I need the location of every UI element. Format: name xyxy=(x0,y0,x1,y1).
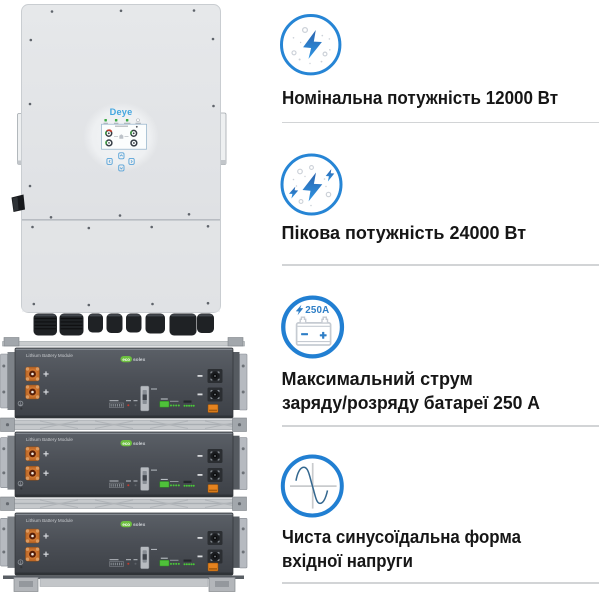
svg-text:solex: solex xyxy=(133,357,146,363)
svg-text:Lithium Battery Module: Lithium Battery Module xyxy=(26,437,73,442)
svg-text:250A: 250A xyxy=(305,305,329,316)
svg-text:solex: solex xyxy=(133,522,146,528)
svg-text:Lithium Battery Module: Lithium Battery Module xyxy=(26,353,73,358)
svg-text:eco: eco xyxy=(122,522,130,527)
svg-text:Deye: Deye xyxy=(110,107,133,117)
svg-text:eco: eco xyxy=(122,441,130,446)
svg-text:eco: eco xyxy=(122,357,130,362)
svg-text:Lithium Battery Module: Lithium Battery Module xyxy=(26,518,73,523)
svg-text:solex: solex xyxy=(133,441,146,447)
